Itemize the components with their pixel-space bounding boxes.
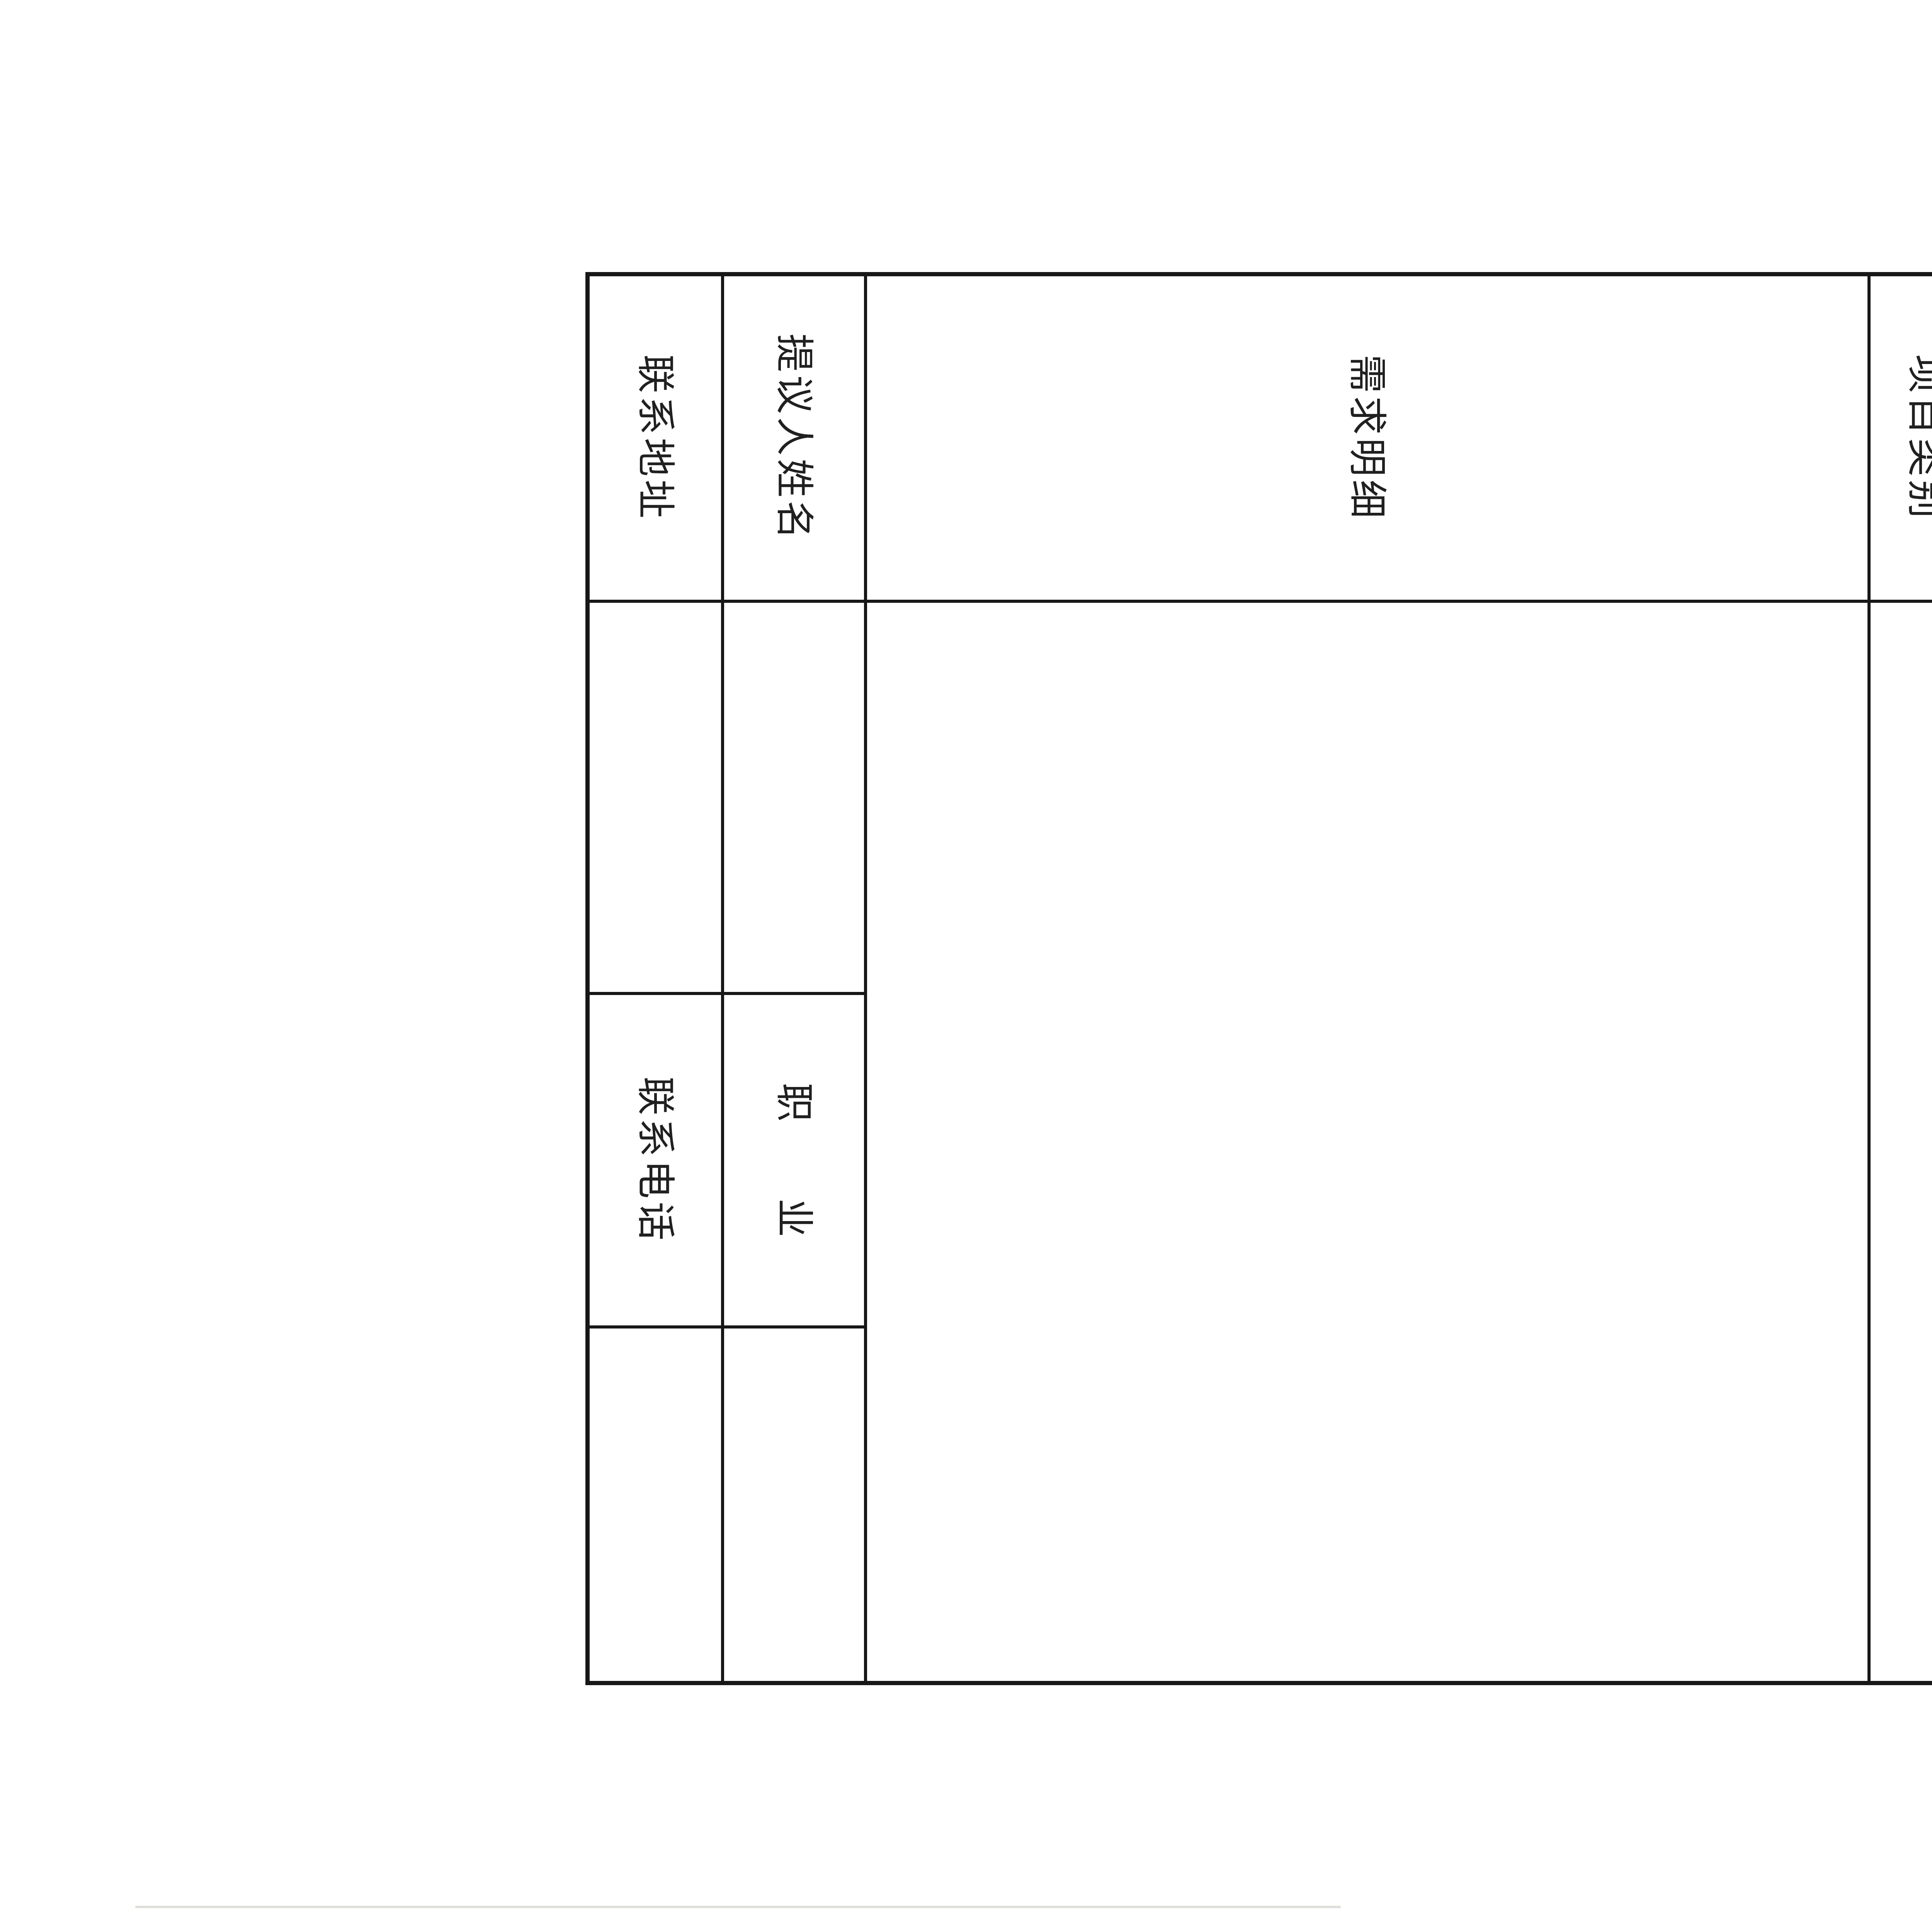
proposer-name-value-cell bbox=[723, 601, 866, 993]
table-row-demand-details: 需求明细 bbox=[866, 274, 1869, 1683]
project-category-label-cell: 项目类别 bbox=[1869, 274, 1932, 601]
contact-address-label-cell: 联系地址 bbox=[588, 274, 723, 601]
demand-details-value-cell bbox=[866, 601, 1869, 1683]
contact-phone-value-cell bbox=[588, 1327, 723, 1683]
occupation-value-cell bbox=[723, 1327, 866, 1683]
contact-phone-label-cell: 联系电话 bbox=[588, 993, 723, 1327]
paper-edge-artifact bbox=[135, 1906, 1341, 1908]
scanned-page: 航城街道社区“民生微实事”项目需求征集表 社区 时间: 项目需求 项目类别 bbox=[0, 0, 1932, 1917]
table-row-proposer: 提议人姓名 职业 bbox=[723, 274, 866, 1683]
occupation-label-cell: 职业 bbox=[723, 993, 866, 1327]
contact-address-value-cell bbox=[588, 601, 723, 993]
request-form-table: 项目需求 项目类别 需求明细 提议人姓名 职业 bbox=[585, 272, 1932, 1685]
table-row-project-category: 项目类别 bbox=[1869, 274, 1932, 1683]
project-category-value-cell bbox=[1869, 601, 1932, 1683]
proposer-name-label-cell: 提议人姓名 bbox=[723, 274, 866, 601]
table-row-contact: 联系地址 联系电话 bbox=[588, 274, 723, 1683]
demand-details-label-cell: 需求明细 bbox=[866, 274, 1869, 601]
form-sheet: 航城街道社区“民生微实事”项目需求征集表 社区 时间: 项目需求 项目类别 bbox=[0, 0, 1932, 1917]
